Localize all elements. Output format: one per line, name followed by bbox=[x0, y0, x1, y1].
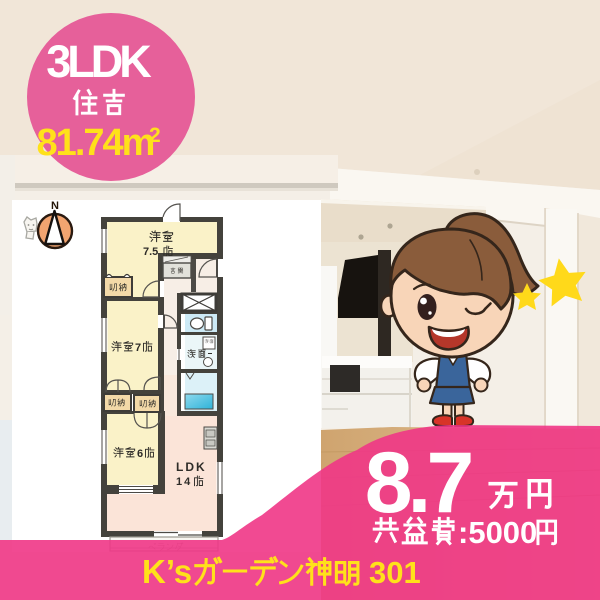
svg-text::5000: :5000 bbox=[458, 515, 537, 550]
svg-text:K’s: K’s bbox=[142, 553, 192, 590]
svg-text:2: 2 bbox=[149, 124, 161, 147]
svg-text:81.74m: 81.74m bbox=[37, 122, 154, 164]
svg-text:6: 6 bbox=[137, 448, 143, 460]
svg-text:3LDK: 3LDK bbox=[46, 36, 152, 87]
svg-text:LDK: LDK bbox=[176, 460, 207, 474]
svg-text:7.5: 7.5 bbox=[143, 246, 158, 258]
svg-text:14: 14 bbox=[176, 476, 192, 488]
svg-text:7: 7 bbox=[135, 342, 141, 354]
svg-text:301: 301 bbox=[369, 555, 421, 590]
svg-text:8.7: 8.7 bbox=[365, 435, 472, 531]
